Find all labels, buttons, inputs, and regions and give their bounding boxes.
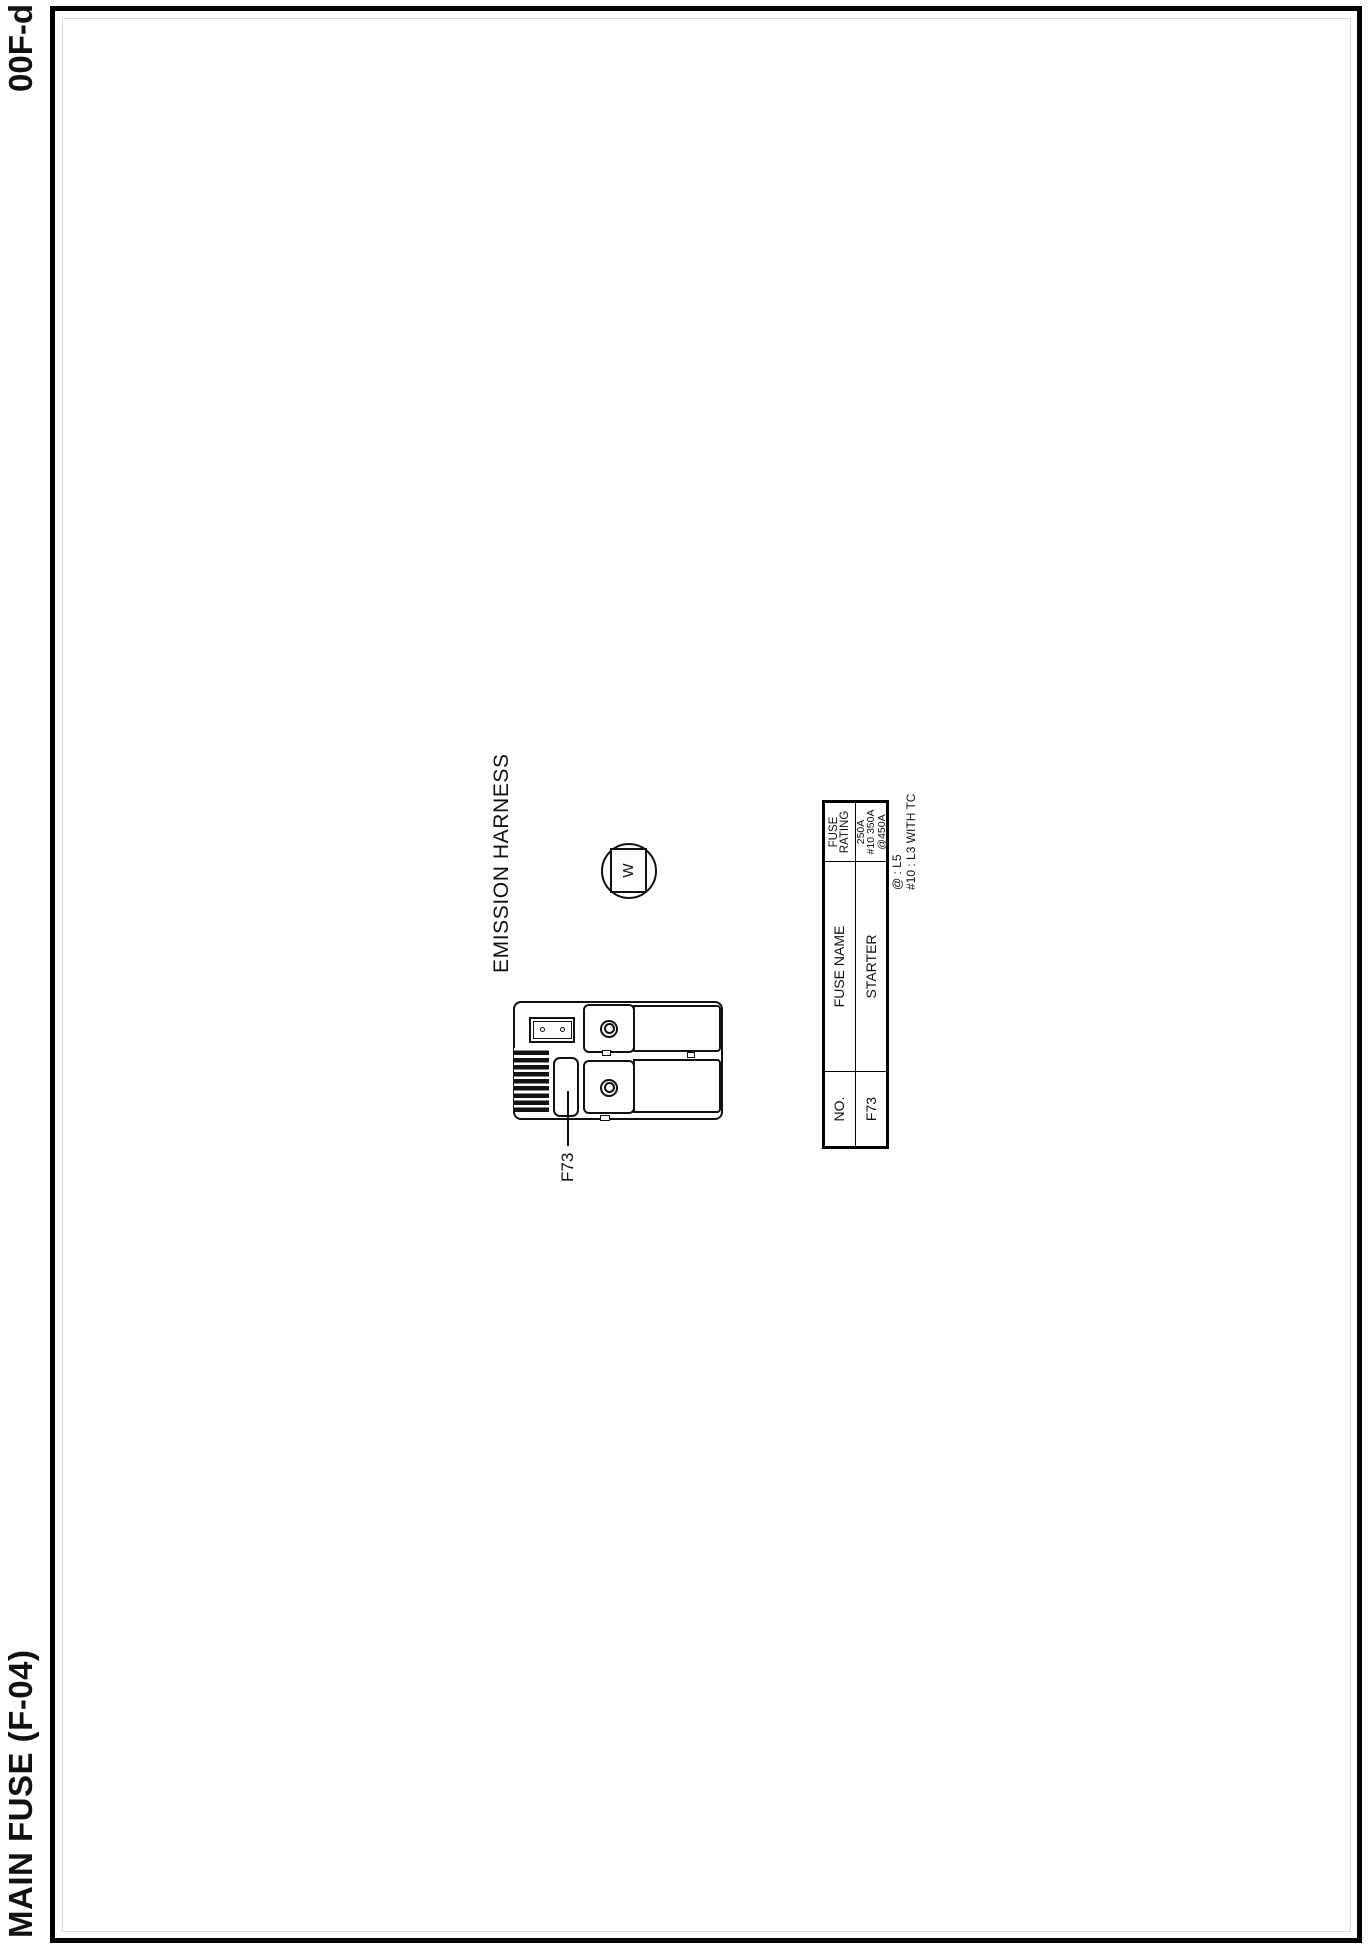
- fusible-link-body: W: [610, 848, 647, 893]
- scanned-manual-page: { "page": { "doc_title": "MAIN FUSE (F-0…: [0, 0, 1370, 1958]
- fuse-body: [633, 1005, 721, 1052]
- table-cell-fuse-rating: 250A #10 350A @450A: [856, 803, 888, 861]
- block-tab: [687, 1052, 695, 1058]
- block-tab: [602, 1050, 611, 1056]
- fuse-body: [633, 1059, 721, 1113]
- connector-pin-hole: [560, 1027, 565, 1032]
- terminal-bolt-inner: [604, 1083, 615, 1094]
- rating-line: #10 350A: [866, 810, 877, 855]
- block-connector-inner: [533, 1021, 572, 1039]
- col-header-fuse-name: FUSE NAME: [825, 861, 856, 1071]
- fuse-table: NO. FUSE NAME FUSE RATING F73 STARTER 25…: [822, 800, 889, 1149]
- block-tab: [600, 1115, 610, 1121]
- table-cell-fuse-name: STARTER: [856, 861, 888, 1071]
- connector-pin-hole: [540, 1027, 545, 1032]
- table-cell-no: F73: [856, 1071, 888, 1146]
- footnote-line: #10 : L3 WITH TC: [905, 794, 919, 890]
- page-code: 00F-d: [2, 4, 40, 92]
- harness-label: EMISSION HARNESS: [490, 753, 514, 973]
- wire-color-label: W: [620, 863, 637, 877]
- rating-line: @450A: [877, 814, 888, 849]
- terminal-bolt-icon: [600, 1020, 618, 1038]
- f73-leader-line: [567, 1091, 569, 1146]
- col-header-fuse-rating: FUSE RATING: [825, 803, 856, 861]
- footnote-line: @ : L5: [891, 794, 905, 890]
- doc-title: MAIN FUSE (F-04): [2, 1650, 40, 1939]
- fuse-rating-header-line2: RATING: [840, 811, 851, 854]
- f73-callout-label: F73: [558, 1153, 578, 1182]
- col-header-no: NO.: [825, 1071, 856, 1146]
- table-footnote: @ : L5 #10 : L3 WITH TC: [891, 794, 918, 890]
- fuse-holder-f73: [553, 1057, 579, 1117]
- scan-edge-line: [62, 18, 1351, 1932]
- rotated-landscape-canvas: MAIN FUSE (F-04) 00F-d EMISSION HARNESS …: [0, 0, 1370, 1958]
- cooling-fins: [514, 1048, 549, 1112]
- terminal-bolt-icon: [600, 1079, 618, 1097]
- terminal-bolt-inner: [604, 1024, 615, 1035]
